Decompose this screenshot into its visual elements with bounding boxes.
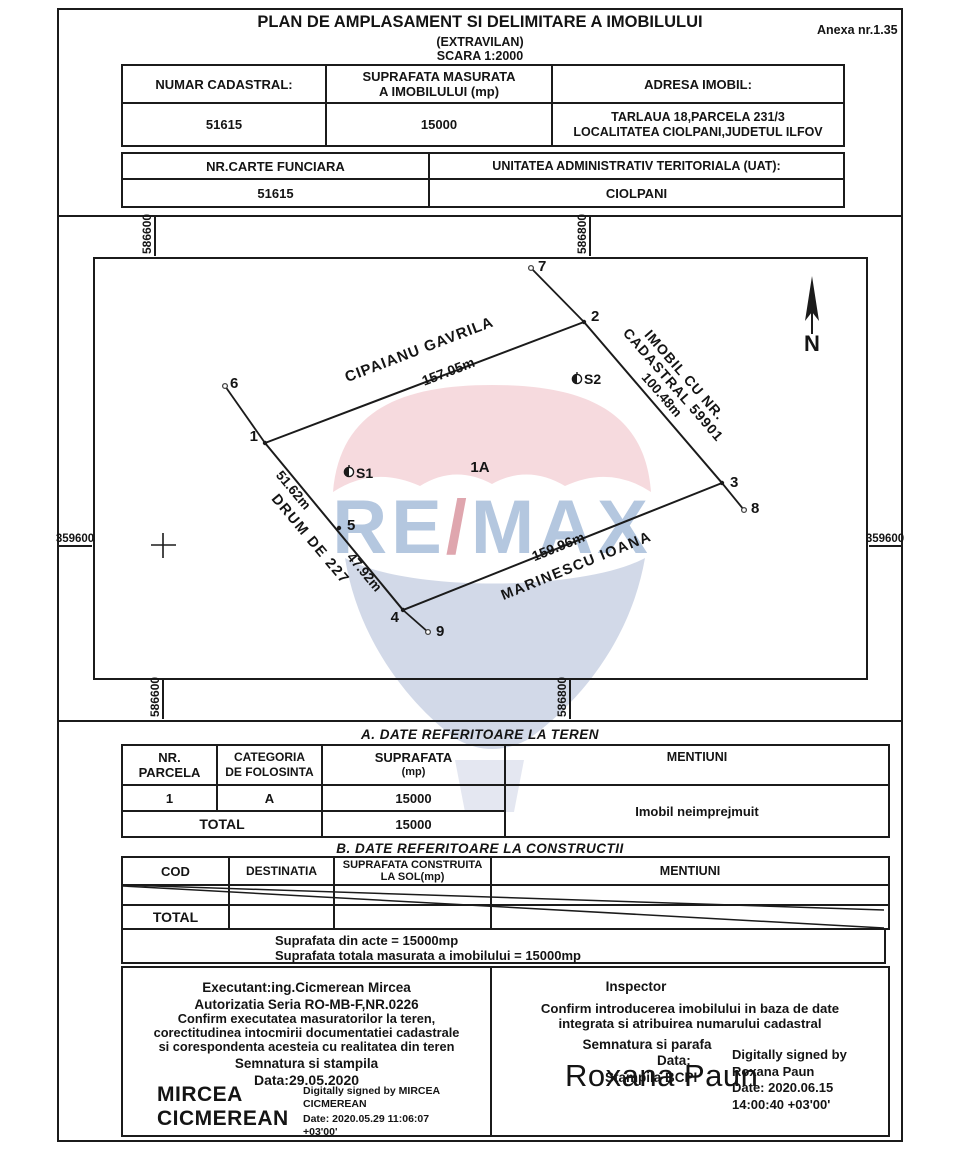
executant-cell: Executant:ing.Cicmerean Mircea Autorizat… [123,968,492,1135]
map-section-top-border [57,215,903,217]
table-b-header-mentiuni: MENTIUNI [492,858,888,886]
table-b-title: B. DATE REFERITOARE LA CONSTRUCTII [120,841,840,856]
table-b-header-destinatia: DESTINATIA [230,858,335,886]
table-a-row-categoria: A [218,786,323,812]
table-b-empty-cod [123,886,230,906]
table-a-row-suprafata: 15000 [323,786,506,812]
inspector-digital-signature-name: Roxana Paun [565,1058,758,1094]
uat-value: CIOLPANI [430,180,843,206]
cadastral-plan-document: RE/MAX PLAN DE AMPLASAMENT SI DELIMITARE… [0,0,960,1164]
table-b-total-label: TOTAL [123,906,230,928]
inspector-digital-signature-note: Digitally signed by Roxana Paun Date: 20… [732,1047,847,1113]
suprafata-acte: Suprafata din acte = 15000mp [275,933,884,948]
map-section-bottom-border [57,720,903,722]
table-b-header-suprafata: SUPRAFATA CONSTRUITALA SOL(mp) [335,858,492,886]
executant-signature-label: Semnatura si stampila [123,1056,490,1071]
numar-cadastral-value: 51615 [123,104,327,145]
executant-authorization: Autorizatia Seria RO-MB-F,NR.0226 [123,997,490,1012]
suprafata-masurata-header: SUPRAFATA MASURATA A IMOBILULUI (mp) [327,66,553,104]
table-b-empty-destinatia [230,886,335,906]
table-b: COD DESTINATIA SUPRAFATA CONSTRUITALA SO… [121,856,890,930]
adresa-imobil-header: ADRESA IMOBIL: [553,66,843,104]
title-extravilan: (EXTRAVILAN) [120,35,840,49]
executant-confirm-3: si corespondenta acesteia cu realitatea … [123,1040,490,1054]
table-b-empty-mentiuni [492,886,888,906]
page-title: PLAN DE AMPLASAMENT SI DELIMITARE A IMOB… [120,13,840,32]
executant-confirm-1: Confirm executatea masuratorilor la tere… [123,1012,490,1026]
numar-cadastral-header: NUMAR CADASTRAL: [123,66,327,104]
annex-number: Anexa nr.1.35 [817,23,898,37]
table-a-title: A. DATE REFERITOARE LA TEREN [120,727,840,742]
carte-funciara-header: NR.CARTE FUNCIARA [123,154,430,180]
table-a-total-label: TOTAL [123,812,323,836]
table-b-header-cod: COD [123,858,230,886]
table-b-total-mentiuni [492,906,888,928]
parcel-header-table: NUMAR CADASTRAL: SUPRAFATA MASURATA A IM… [121,64,845,147]
table-a-row-mentiuni: Imobil neimprejmuit [506,786,888,836]
title-scale: SCARA 1:2000 [120,49,840,63]
suprafata-masurata-total: Suprafata totala masurata a imobilului =… [275,948,884,963]
table-a-header-nr-parcela: NR.PARCELA [123,746,218,786]
executant-digital-signature-name: MIRCEACICMEREAN [157,1083,289,1131]
table-b-total-suprafata [335,906,492,928]
table-a-total-suprafata: 15000 [323,812,506,836]
executant-name-line: Executant:ing.Cicmerean Mircea [123,980,490,995]
suprafata-masurata-value: 15000 [327,104,553,145]
inspector-confirm-1: Confirm introducerea imobilului in baza … [492,1001,888,1016]
table-b-empty-suprafata [335,886,492,906]
executant-confirm-2: corectitudinea intocmirii documentatiei … [123,1026,490,1040]
carte-funciara-value: 51615 [123,180,430,206]
inspector-cell: Inspector Confirm introducerea imobilulu… [492,968,888,1135]
table-a-header-suprafata: SUPRAFATA(mp) [323,746,506,786]
table-b-total-destinatia [230,906,335,928]
inspector-confirm-2: integrata si atribuirea numarului cadast… [492,1016,888,1031]
carte-funciara-table: NR.CARTE FUNCIARA UNITATEA ADMINISTRATIV… [121,152,845,208]
executant-digital-signature-note: Digitally signed by MIRCEA CICMEREAN Dat… [303,1085,440,1138]
totals-box: Suprafata din acte = 15000mp Suprafata t… [121,928,886,964]
adresa-imobil-value: TARLAUA 18,PARCELA 231/3 LOCALITATEA CIO… [553,104,843,145]
table-a-header-mentiuni: MENTIUNI [506,746,888,786]
uat-header: UNITATEA ADMINISTRATIV TERITORIALA (UAT)… [430,154,843,180]
table-a-row-nr: 1 [123,786,218,812]
signatures-box: Executant:ing.Cicmerean Mircea Autorizat… [121,966,890,1137]
table-a: NR.PARCELA CATEGORIADE FOLOSINTA SUPRAFA… [121,744,890,838]
table-a-header-categoria: CATEGORIADE FOLOSINTA [218,746,323,786]
map-inner-frame [93,257,868,680]
inspector-label: Inspector [536,979,736,994]
